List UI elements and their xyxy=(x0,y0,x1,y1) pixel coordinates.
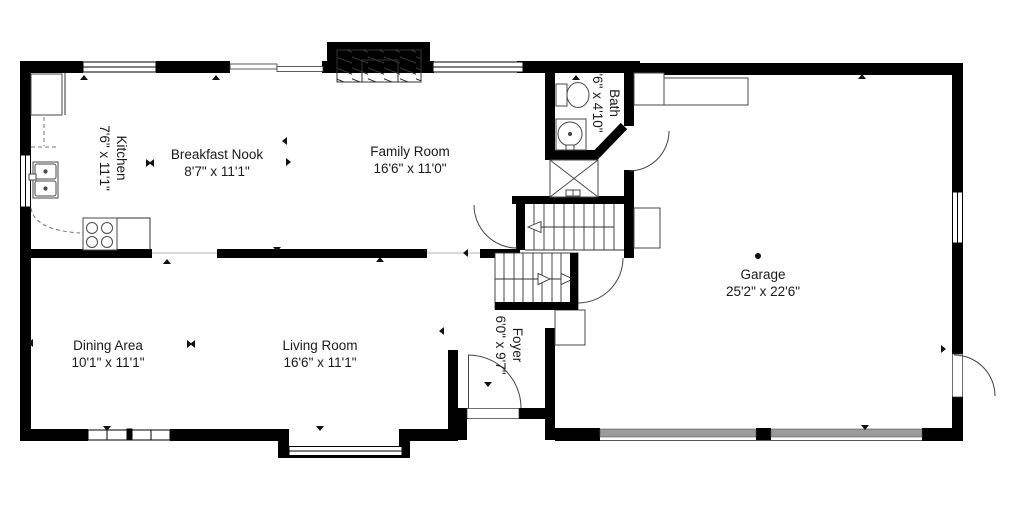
wall-segment xyxy=(952,63,963,192)
toilet-tank xyxy=(556,84,567,106)
direction-marker xyxy=(484,382,492,387)
wall-segment xyxy=(20,207,31,440)
room-label-breakfast-name: Breakfast Nook xyxy=(171,147,264,162)
wall-segment xyxy=(545,328,555,440)
direction-marker xyxy=(316,426,324,431)
counter-dashed-curve xyxy=(31,208,80,233)
fireplace xyxy=(327,42,430,82)
room-label-kitchen-name: Kitchen xyxy=(114,135,129,180)
stairs xyxy=(495,204,624,309)
wall-segment xyxy=(756,428,771,441)
vanity-drain xyxy=(568,132,571,135)
sink-drain xyxy=(44,187,47,190)
room-labels: Kitchen 7'6" x 11'1" Breakfast Nook 8'7"… xyxy=(71,73,800,374)
room-label-kitchen-dims: 7'6" x 11'1" xyxy=(97,125,112,191)
walls xyxy=(20,61,963,458)
direction-marker xyxy=(941,345,946,353)
room-label-family-name: Family Room xyxy=(370,144,450,159)
room-label-dining-dims: 10'1" x 11'1" xyxy=(71,355,144,370)
wall-segment xyxy=(570,253,578,309)
wall-segment xyxy=(640,63,963,75)
wall-segment xyxy=(448,350,458,440)
garage-storage xyxy=(634,208,660,248)
window xyxy=(277,67,323,72)
front-door-sill xyxy=(467,409,519,419)
wall-segment xyxy=(922,428,963,441)
room-label-bath-dims: '6" x 4'10" xyxy=(590,73,605,132)
stairs-lower-run xyxy=(495,253,578,309)
floor-plan-drawing: Kitchen 7'6" x 11'1" Breakfast Nook 8'7"… xyxy=(0,0,1024,516)
windows xyxy=(21,62,963,456)
direction-marker xyxy=(572,75,580,80)
wall-segment xyxy=(495,302,578,310)
door-arc-family-to-stairs xyxy=(474,205,517,248)
wall-segment xyxy=(516,204,525,250)
window xyxy=(230,64,277,69)
direction-marker xyxy=(80,75,88,80)
wall-segment xyxy=(523,61,640,73)
wall-segment xyxy=(545,73,555,160)
floor-plan-canvas: Kitchen 7'6" x 11'1" Breakfast Nook 8'7"… xyxy=(0,0,1024,516)
fireplace-hearth xyxy=(337,50,421,82)
wall-segment xyxy=(458,419,467,440)
door-arc-bath xyxy=(629,131,669,171)
bath-fixtures xyxy=(556,83,589,151)
room-label-bath-name: Bath xyxy=(607,89,622,117)
garage-cabinet xyxy=(664,78,748,105)
wall-segment xyxy=(555,428,600,441)
counter-outline xyxy=(117,218,150,250)
wall-segment xyxy=(624,170,634,198)
foyer-closet xyxy=(555,310,585,345)
room-label-breakfast-dims: 8'7" x 11'1" xyxy=(184,164,250,179)
direction-marker xyxy=(286,158,291,166)
room-label-foyer-name: Foyer xyxy=(510,328,525,363)
room-label-family-dims: 16'6" x 11'0" xyxy=(373,161,446,176)
room-label-dining-name: Dining Area xyxy=(73,338,143,353)
wall-segment xyxy=(624,196,634,258)
wall-segment xyxy=(952,243,963,354)
room-label-garage-name: Garage xyxy=(740,267,785,282)
direction-marker xyxy=(163,259,171,264)
direction-marker xyxy=(439,327,444,335)
garage-door-panel xyxy=(771,429,922,437)
direction-marker xyxy=(463,249,468,257)
vanity-faucet xyxy=(566,145,574,150)
closets xyxy=(550,73,748,345)
stairs-upper-run xyxy=(525,204,624,250)
wall-segment xyxy=(20,429,88,441)
wall-segment xyxy=(20,61,31,155)
wall-segment xyxy=(458,408,468,419)
garage-side-door-panel xyxy=(953,354,963,397)
room-label-foyer-dims: 6'0" x 9'7" xyxy=(493,315,508,374)
room-label-living-dims: 16'6" x 11'1" xyxy=(283,355,356,370)
wall-segment xyxy=(156,61,230,73)
wall-segment xyxy=(170,429,280,441)
refrigerator xyxy=(31,74,62,115)
toilet-bowl xyxy=(567,83,589,108)
direction-marker xyxy=(282,137,287,145)
door-arc-landing-to-garage xyxy=(578,258,623,303)
room-label-garage-dims: 25'2" x 22'6" xyxy=(726,284,800,299)
direction-marker xyxy=(190,340,195,348)
direction-marker xyxy=(212,75,220,80)
wall-segment xyxy=(624,73,634,126)
stair-arrow-head xyxy=(528,222,541,233)
wall-segment xyxy=(545,150,598,160)
room-label-living-name: Living Room xyxy=(282,338,357,353)
sink-drain xyxy=(44,170,47,173)
ceiling-dot xyxy=(755,253,761,259)
garage-side-door xyxy=(953,354,996,397)
garage-cabinet xyxy=(634,73,664,105)
window-divider xyxy=(127,429,132,440)
garage-door-panel xyxy=(600,429,756,437)
sink-faucet xyxy=(29,174,36,180)
direction-marker xyxy=(149,159,154,167)
wall-segment xyxy=(217,249,427,258)
kitchen-fixtures xyxy=(29,73,150,250)
